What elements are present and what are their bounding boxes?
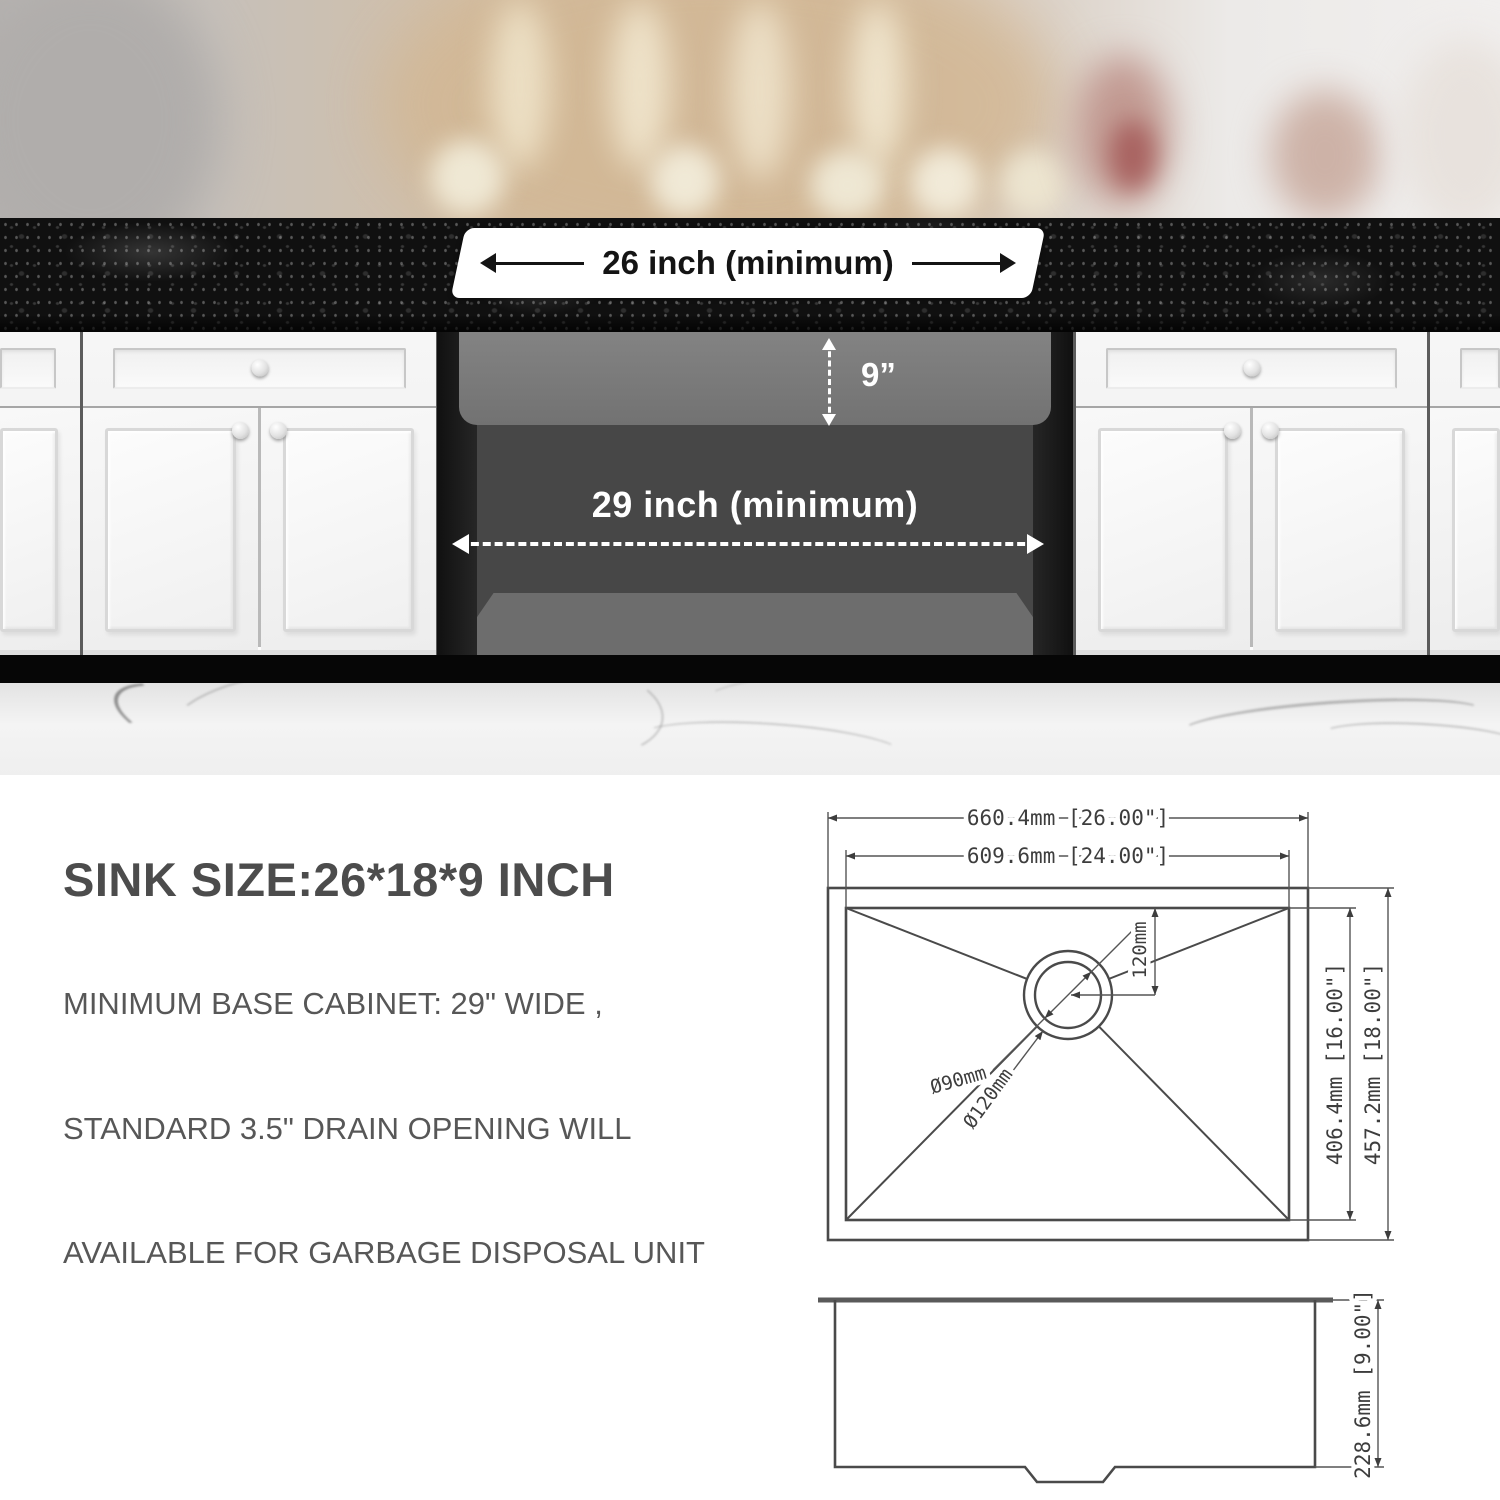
cabinet-drawer <box>95 339 424 397</box>
sink-size-title: SINK SIZE:26*18*9 INCH <box>63 852 615 907</box>
door-panel <box>1452 428 1500 632</box>
info-line-drain: STANDARD 3.5" DRAIN OPENING WILL <box>63 1111 632 1147</box>
depth-arrow-icon <box>828 342 831 422</box>
cabinet-door <box>261 408 436 650</box>
sink-product-sheet: 26 inch (minimum) 9 <box>0 0 1500 1500</box>
background-blob <box>1110 120 1155 190</box>
cabinet-door <box>0 408 80 650</box>
marble-floor <box>0 683 1500 775</box>
cabinet-drawer <box>0 339 74 397</box>
cabinet-door <box>1076 408 1250 650</box>
dim-bowl-depth: 406.4mm [16.00"] <box>1323 963 1347 1165</box>
arrow-right-icon <box>912 262 1012 265</box>
cabinet-doors <box>0 406 80 650</box>
background-blob <box>1270 90 1380 218</box>
drawer-knob <box>1243 360 1260 377</box>
marble-vein <box>1319 718 1500 763</box>
cabinet-drawer <box>1088 339 1415 397</box>
kitchen-background <box>0 0 1500 218</box>
arrow-left-icon <box>484 262 584 265</box>
base-cabinet-left <box>83 332 436 655</box>
bokeh-dot <box>1000 150 1066 216</box>
countertop-dimension-label: 26 inch (minimum) <box>584 244 912 282</box>
background-blob <box>0 0 220 218</box>
toe-kick-shadow <box>0 655 1500 683</box>
dim-overall-depth: 457.2mm [18.00"] <box>1361 963 1385 1165</box>
sink-body-profile <box>835 1300 1315 1482</box>
sink-outer-rim <box>828 888 1308 1240</box>
bokeh-streak <box>490 0 550 170</box>
bokeh-streak <box>850 0 905 170</box>
door-panel <box>0 428 58 632</box>
cabinet-doors <box>83 406 436 650</box>
base-cabinet-right <box>1076 332 1427 655</box>
base-cabinet-partial-left <box>0 332 80 655</box>
info-line-disposal: AVAILABLE FOR GARBAGE DISPOSAL UNIT <box>63 1235 705 1271</box>
cabinet-floor <box>451 593 1059 655</box>
cabinet-door <box>1430 408 1500 650</box>
background-blob <box>1400 40 1500 218</box>
cabinet-drawer <box>1442 339 1500 397</box>
door-panel <box>283 428 414 632</box>
bokeh-dot <box>650 145 720 217</box>
bokeh-streak <box>610 0 670 170</box>
dim-bowl-width: 609.6mm [24.00"] <box>967 844 1169 868</box>
countertop-dimension-banner: 26 inch (minimum) <box>451 228 1046 298</box>
sink-silhouette <box>459 332 1051 425</box>
door-knob <box>1262 422 1279 439</box>
bokeh-streak <box>730 0 790 180</box>
bokeh-dot <box>810 150 885 218</box>
door-panel <box>105 428 236 632</box>
cabinet-doors <box>1430 406 1500 650</box>
cabinet-width-label: 29 inch (minimum) <box>437 484 1073 526</box>
bokeh-dot <box>430 140 505 215</box>
door-panel <box>1098 428 1228 632</box>
top-view-drawing: 660.4mm [26.00"] 609.6mm [24.00"] 406.4m… <box>788 782 1436 1282</box>
info-line-cabinet: MINIMUM BASE CABINET: 29" WIDE , <box>63 986 603 1022</box>
door-knob <box>232 422 249 439</box>
door-panel <box>1275 428 1405 632</box>
door-knob <box>270 422 287 439</box>
dim-overall-width: 660.4mm [26.00"] <box>967 806 1169 830</box>
cabinet-door <box>1253 408 1427 650</box>
sink-cabinet-opening: 9” 29 inch (minimum) <box>437 332 1073 655</box>
marble-vein <box>476 683 669 766</box>
dim-drain-offset: 120mm <box>1129 921 1151 978</box>
base-cabinet-partial-right <box>1430 332 1500 655</box>
cabinet-door <box>83 408 258 650</box>
drawer-knob <box>251 360 268 377</box>
dim-sink-height: 228.6mm [9.00"] <box>1351 1289 1375 1479</box>
cabinet-run: 9” 29 inch (minimum) <box>0 332 1500 655</box>
sink-depth-label: 9” <box>861 356 896 394</box>
drawer-face <box>0 348 56 389</box>
marble-vein <box>639 714 905 775</box>
side-view-drawing: 228.6mm [9.00"] <box>788 1282 1436 1497</box>
bokeh-dot <box>910 148 980 218</box>
cabinet-doors <box>1076 406 1427 650</box>
countertop-dimension-content: 26 inch (minimum) <box>458 228 1038 298</box>
width-arrow-icon <box>459 542 1037 546</box>
door-knob <box>1224 422 1241 439</box>
drawer-face <box>1460 348 1500 389</box>
